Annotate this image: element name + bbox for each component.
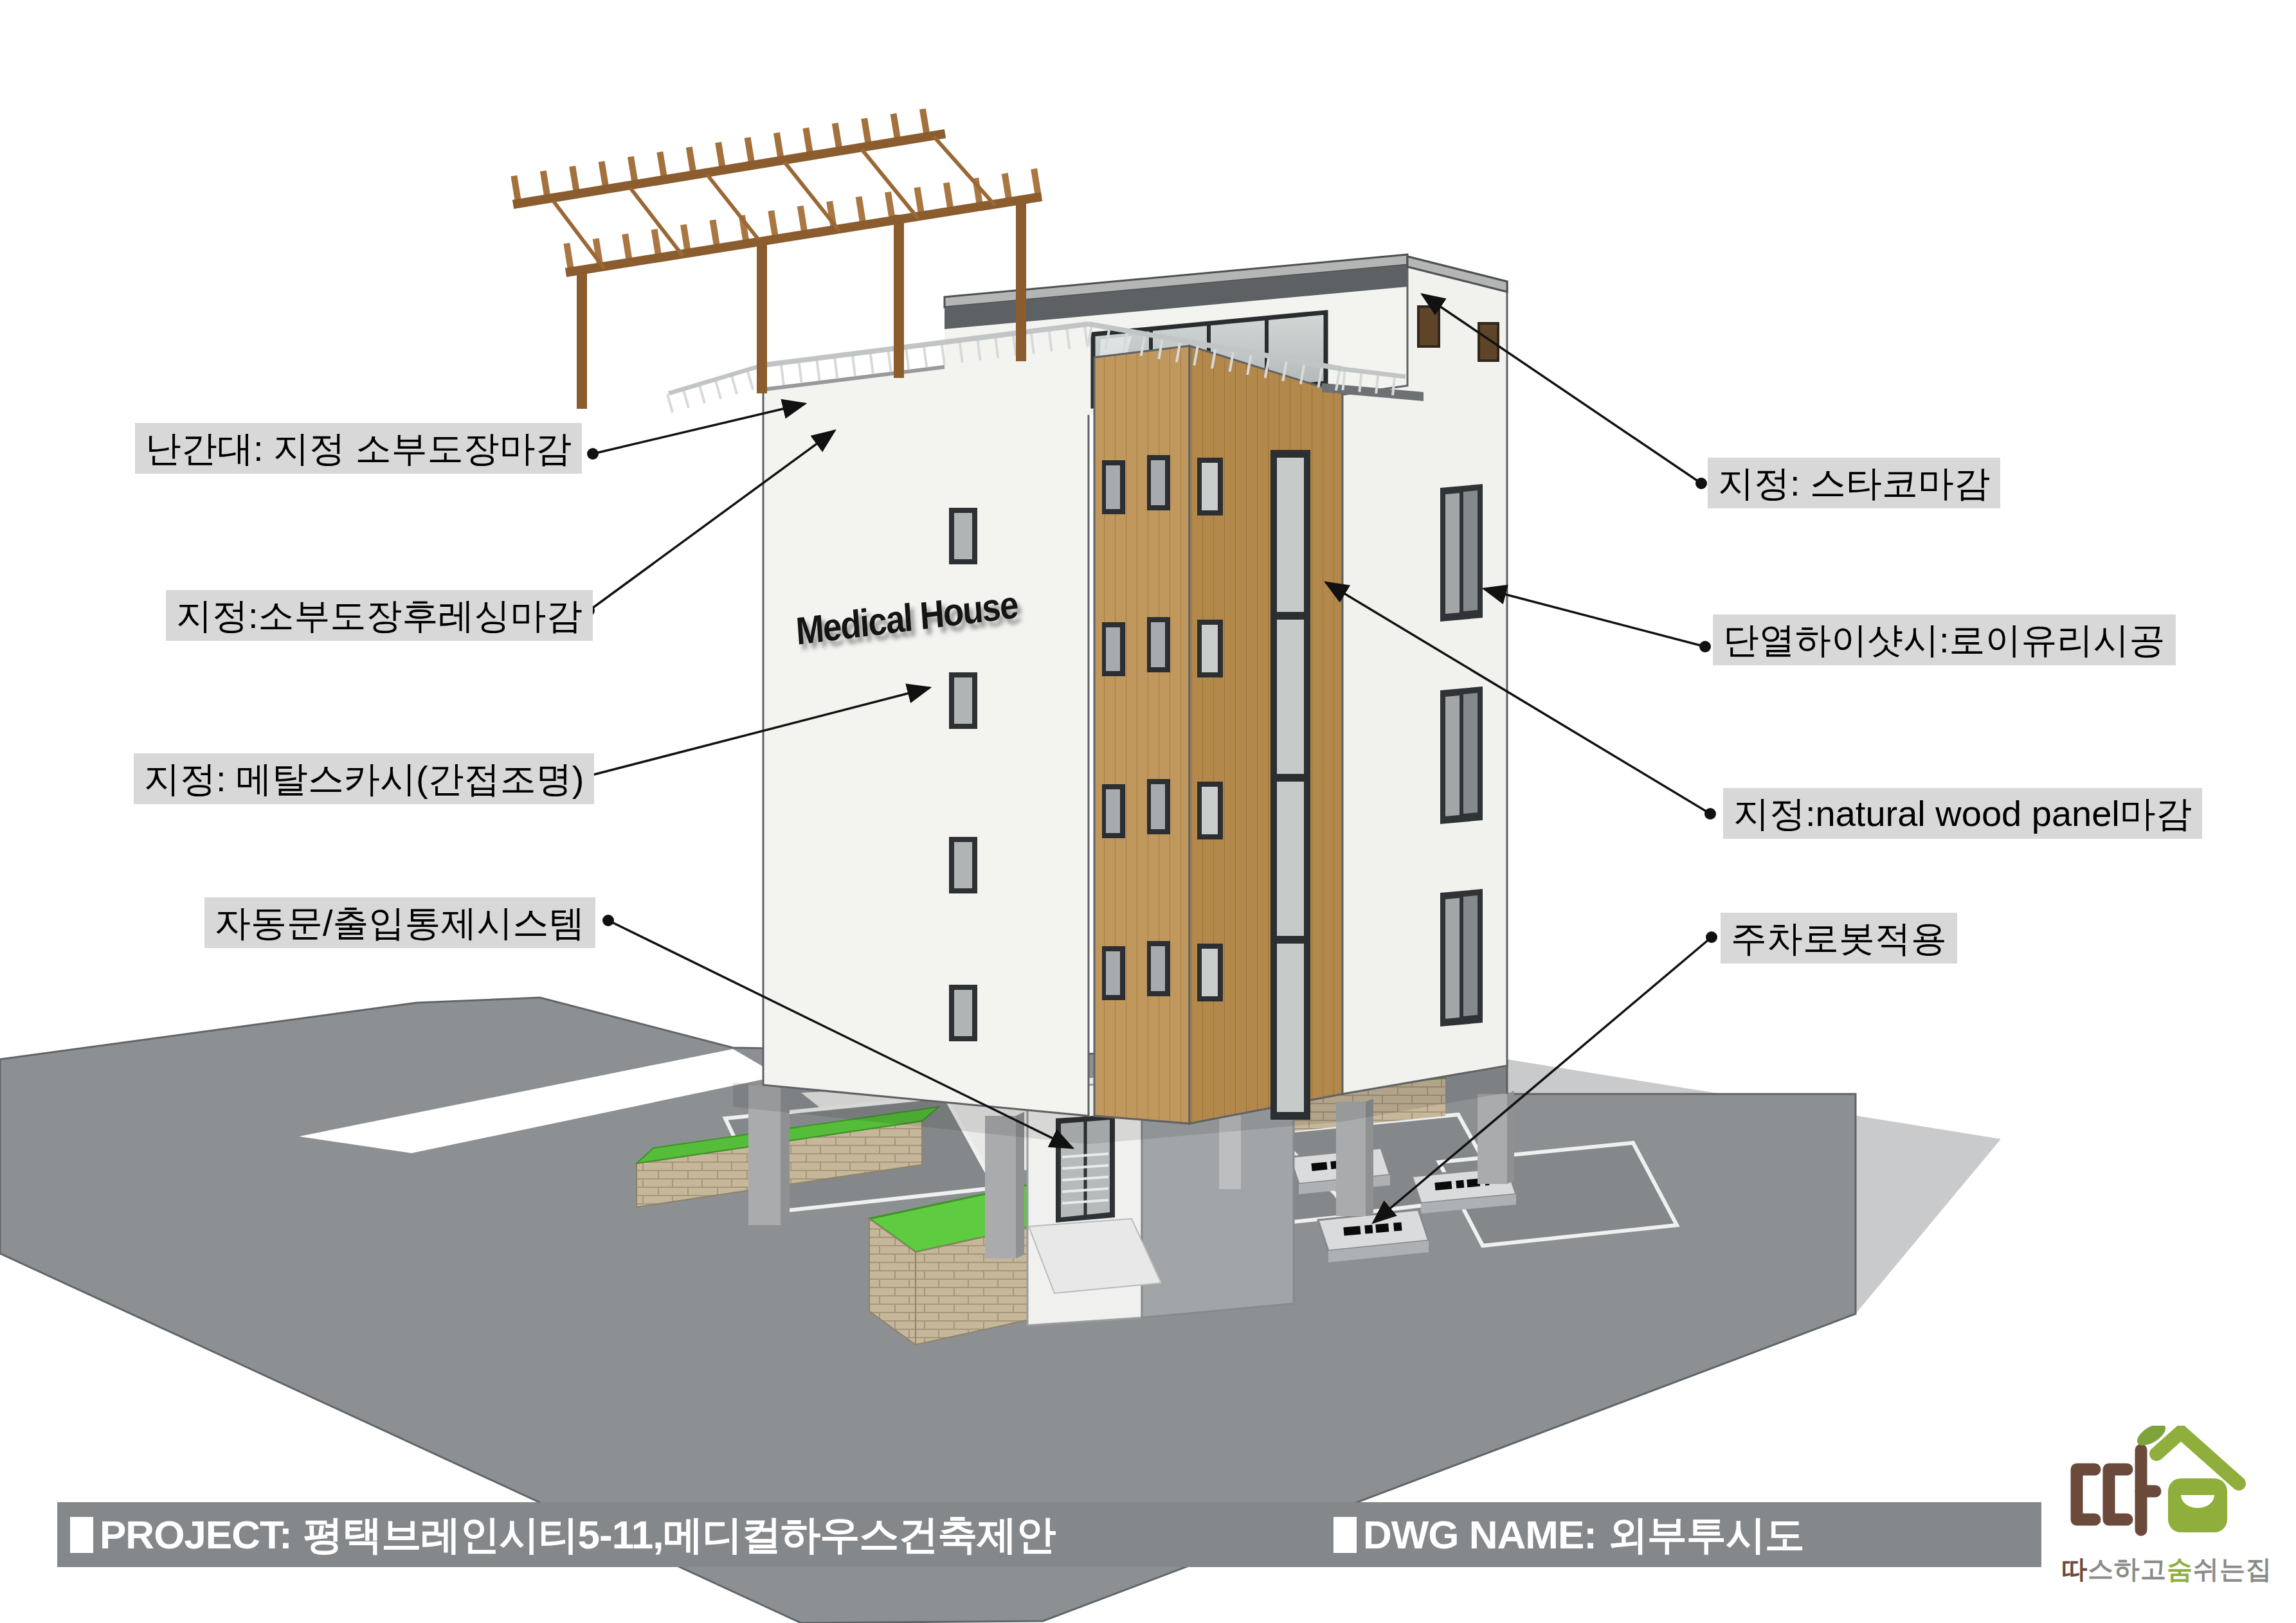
project-marker-icon — [70, 1517, 93, 1553]
callout-stucco: 지정: 스타코마감 — [1708, 458, 2000, 508]
callout-railing: 난간대: 지정 소부도장마감 — [135, 423, 582, 474]
tagline-part: 숨 — [2167, 1555, 2193, 1583]
building — [513, 120, 1507, 1144]
callout-auto-door: 자동문/출입통제시스템 — [204, 897, 595, 948]
project-title-group: PROJECT: 평택브레인시티5-11,메디컬하우스건축제안 — [70, 1502, 1056, 1567]
tagline-part: 따 — [2061, 1555, 2088, 1583]
callout-flashing: 지정:소부도장후레싱마감 — [166, 590, 593, 641]
right-facade-windows — [1440, 484, 1483, 1027]
dwg-marker-icon — [1333, 1517, 1357, 1553]
project-value: 평택브레인시티5-11,메디컬하우스건축제안 — [303, 1508, 1056, 1562]
tagline-part: 쉬는집 — [2193, 1555, 2272, 1583]
taasum-logo-icon — [2055, 1426, 2261, 1554]
dwg-name-group: DWG NAME: 외부투시도 — [1333, 1502, 1804, 1567]
callout-window-sash: 단열하이샷시:로이유리시공 — [1713, 614, 2176, 665]
callout-wood-panel: 지정:natural wood panel마감 — [1723, 788, 2202, 839]
title-bar: PROJECT: 평택브레인시티5-11,메디컬하우스건축제안 DWG NAME… — [57, 1502, 2041, 1567]
taasum-logo: 따스하고숨쉬는집 — [2055, 1426, 2261, 1599]
dwg-value: 외부투시도 — [1608, 1508, 1804, 1562]
callout-metal-sign: 지정: 메탈스카시(간접조명) — [134, 753, 594, 804]
tagline-part: 스하고 — [2088, 1555, 2167, 1583]
wood-panel-facade — [1094, 346, 1342, 1124]
dwg-label: DWG NAME: — [1363, 1512, 1596, 1557]
logo-tagline: 따스하고숨쉬는집 — [2061, 1552, 2272, 1587]
project-label: PROJECT: — [100, 1512, 292, 1557]
left-facade-stucco — [763, 349, 1089, 1116]
callout-parking-robot: 주차로봇적용 — [1721, 913, 1957, 964]
slide-canvas: Medical House 난간대: 지정 소부도장마감 지정:소부도장후레싱마… — [0, 0, 2296, 1623]
